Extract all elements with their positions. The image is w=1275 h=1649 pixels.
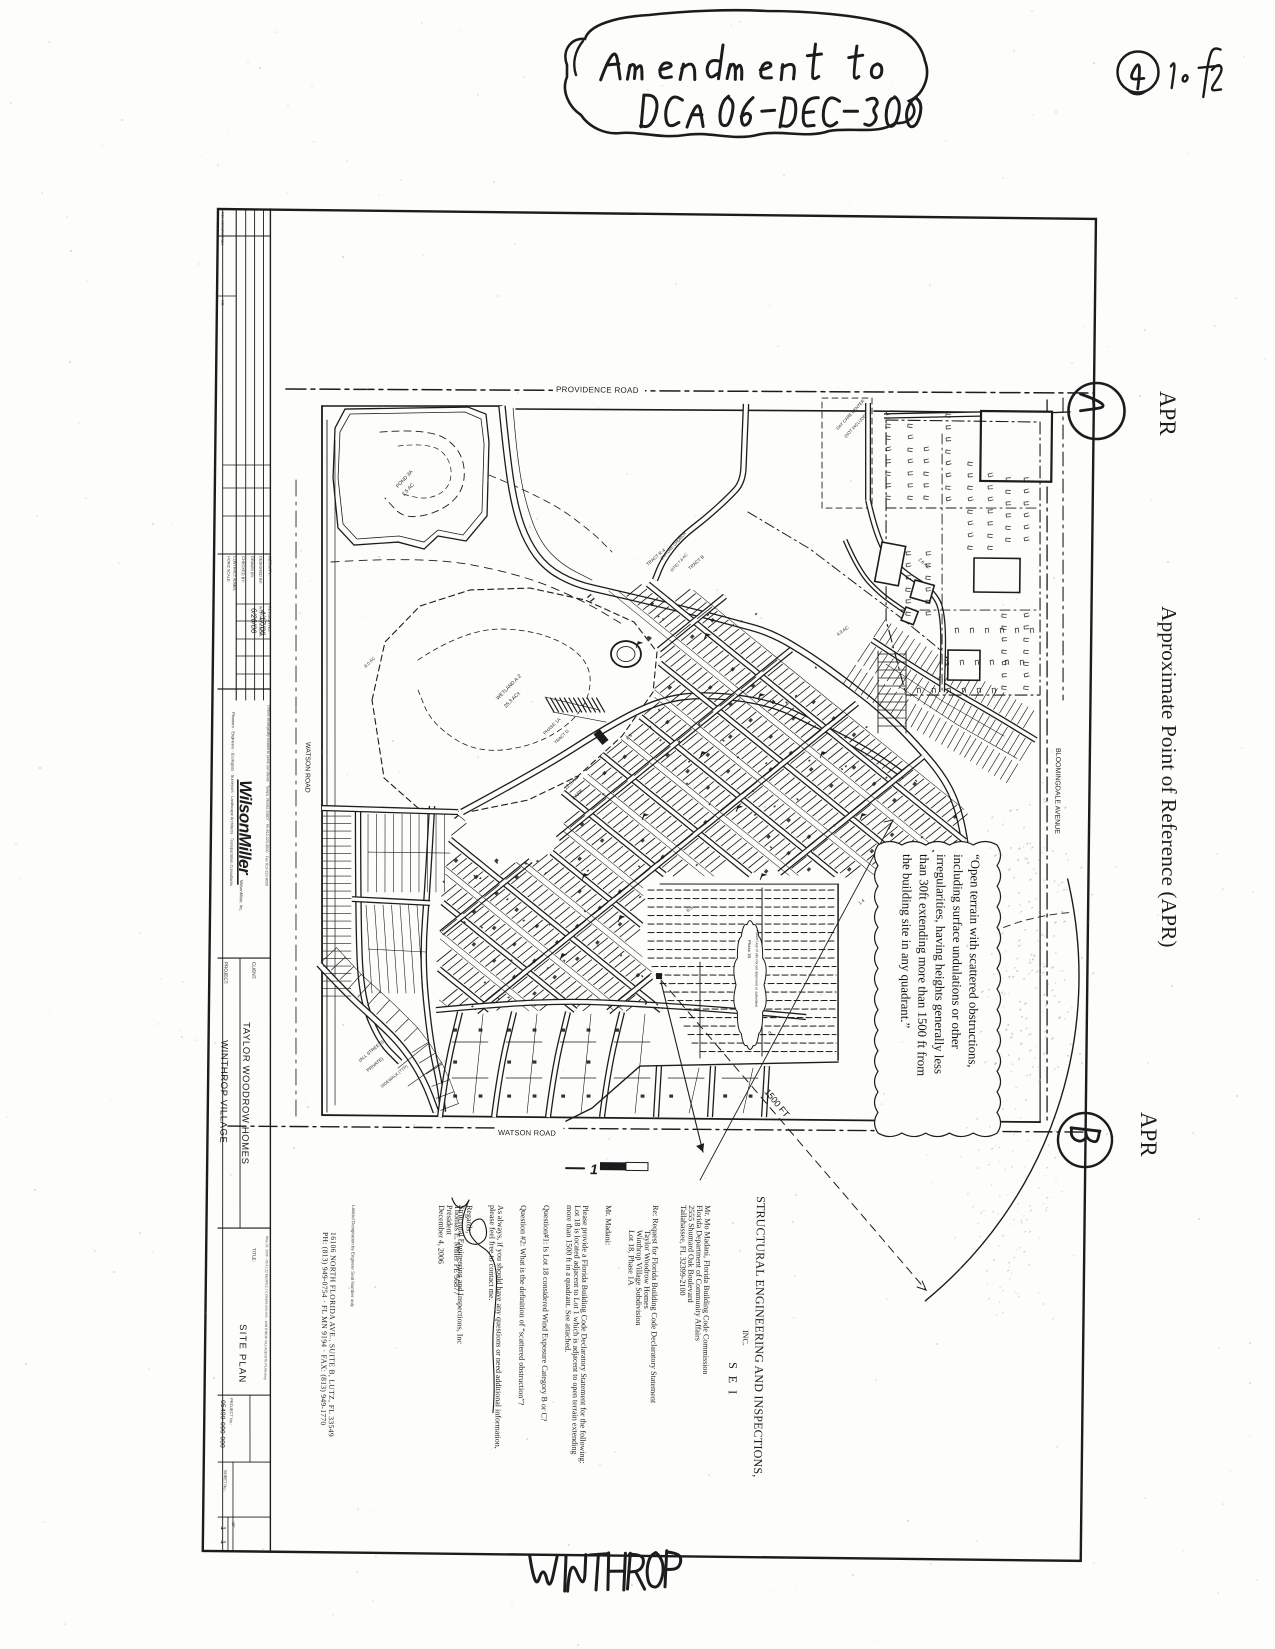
svg-text:including surface undulations: including surface undulations or other — [949, 854, 965, 1050]
svg-text:HORIZ SCALE:: HORIZ SCALE: — [226, 556, 230, 582]
svg-text:INC.: INC. — [741, 1330, 750, 1346]
svg-text:S E I: S E I — [726, 1362, 740, 1396]
svg-text:December 4, 2006: December 4, 2006 — [436, 1205, 446, 1264]
svg-text:Tallahassee, FL 32399-2100: Tallahassee, FL 32399-2100 — [678, 1205, 688, 1296]
svg-text:Approximate Point of Reference: Approximate Point of Reference (APR) — [1157, 606, 1181, 948]
svg-text:PROJECT:: PROJECT: — [223, 962, 228, 984]
svg-text:CONTRACT ADMIN:: CONTRACT ADMIN: — [232, 556, 236, 591]
svg-text:APR: APR — [1155, 391, 1180, 436]
svg-text:APR: APR — [1136, 1112, 1161, 1157]
svg-text:WATSON ROAD: WATSON ROAD — [498, 1128, 557, 1138]
svg-text:DESIGNED BY:: DESIGNED BY: — [258, 556, 263, 584]
svg-text:BLOOMINGDALE AVENUE: BLOOMINGDALE AVENUE — [1053, 748, 1061, 834]
svg-text:4/17/06: 4/17/06 — [258, 610, 267, 636]
svg-text:NO.: NO. — [220, 300, 224, 306]
svg-text:SHEET No.:: SHEET No.: — [223, 1470, 228, 1492]
svg-text:05499-000-000: 05499-000-000 — [218, 1400, 226, 1448]
svg-text:SITE PLAN: SITE PLAN — [236, 1324, 248, 1383]
svg-text:ACTIVITY:: ACTIVITY: — [267, 556, 272, 576]
svg-text:1: 1 — [219, 1540, 226, 1544]
svg-text:REV DESCRIPTION: REV DESCRIPTION — [220, 212, 224, 245]
svg-text:PROVIDENCE ROAD: PROVIDENCE ROAD — [556, 385, 639, 395]
svg-text:than 30ft extending more than: than 30ft extending more than 1500 ft fr… — [915, 854, 932, 1076]
svg-text:DRAWN BY:: DRAWN BY: — [250, 556, 255, 578]
svg-text:TAYLOR WOODROW HOMES: TAYLOR WOODROW HOMES — [239, 1022, 252, 1165]
svg-text:WilsonMiller, Inc.: WilsonMiller, Inc. — [239, 880, 244, 911]
svg-text:1: 1 — [219, 1526, 226, 1530]
svg-text:Phase 1B: Phase 1B — [747, 940, 752, 958]
svg-text:1: 1 — [590, 1161, 598, 1177]
svg-text:Lot 18, Phase 1A: Lot 18, Phase 1A — [626, 1230, 636, 1286]
svg-text:WINTHROP VILLAGE: WINTHROP VILLAGE — [217, 1040, 229, 1144]
svg-text:“Open terrain with scattered o: “Open terrain with scattered obstruction… — [966, 854, 982, 1068]
svg-text:WATSON ROAD: WATSON ROAD — [303, 742, 311, 793]
svg-text:TITLE:: TITLE: — [251, 1248, 256, 1262]
svg-text:6/26/06: 6/26/06 — [249, 608, 258, 634]
svg-text:CHECKED BY:: CHECKED BY: — [241, 556, 246, 583]
svg-text:more than 1500 ft in a quadran: more than 1500 ft in a quadrant. See att… — [563, 1205, 574, 1352]
svg-text:PROJECT No.:: PROJECT No.: — [229, 1398, 234, 1425]
svg-text:the building site in any quadr: the building site in any quadrant.” — [898, 854, 914, 1029]
svg-text:irregularities, having heights: irregularities, having heights generally… — [932, 854, 948, 1074]
svg-text:Mr. Madani:: Mr. Madani: — [604, 1205, 613, 1245]
svg-text:CLIENT:: CLIENT: — [251, 962, 256, 979]
svg-text:OF: OF — [231, 1522, 236, 1528]
